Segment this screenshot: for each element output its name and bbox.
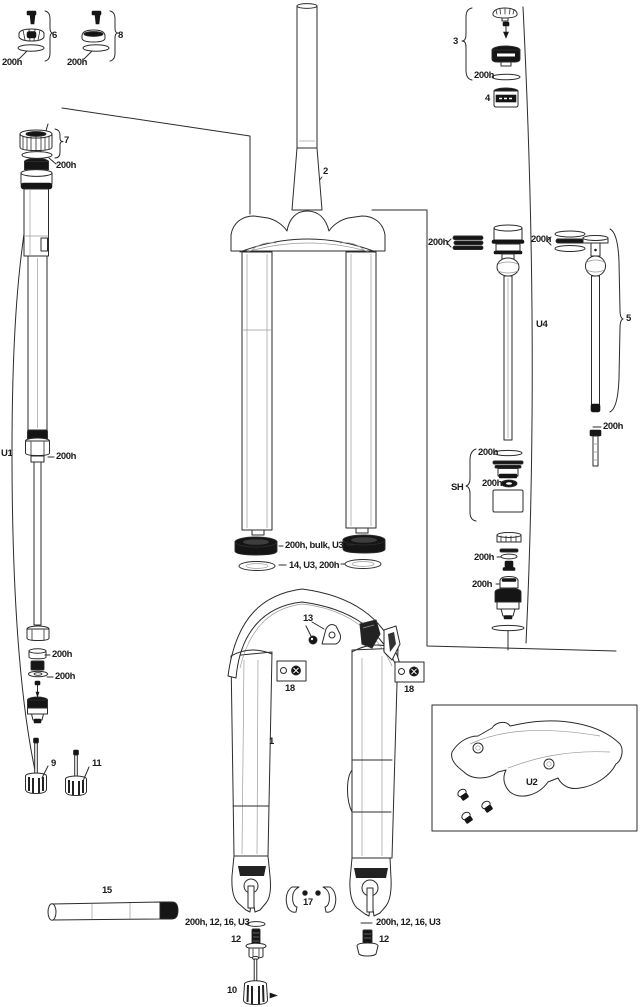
part-4-label: 4 <box>485 94 490 104</box>
fork-line-art <box>0 0 640 1007</box>
part-18-box-left <box>277 661 306 681</box>
exploded-parts-diagram: 6 200h 8 200h 3 200h 4 7 200h 2 U1 200h … <box>0 0 640 1007</box>
part5-foot-service-interval: 200h <box>603 422 623 432</box>
part-1-label: 1 <box>269 737 274 747</box>
part-4-canister <box>494 88 518 107</box>
part-11-label: 11 <box>92 759 101 769</box>
part-12-right-label: 12 <box>379 935 389 945</box>
dropout-left <box>232 856 271 912</box>
group6-service-interval: 200h <box>2 58 22 68</box>
damper-cartridge-u1 <box>21 159 54 641</box>
u4-rings-service-interval: 200h <box>428 238 448 248</box>
part-12-left-label: 12 <box>231 935 241 945</box>
assembly-u1-label: U1 <box>1 449 12 459</box>
part5-rings-service-interval: 200h <box>531 235 551 245</box>
axle-bolt-callout-left: 200h, 12, 16, U3 <box>185 918 249 928</box>
group3-service-interval: 200h <box>474 71 494 81</box>
part-18-right-label: 18 <box>404 685 414 695</box>
part-10-rebound-knob <box>244 956 278 1004</box>
group-8-top-cap-assembly <box>82 11 118 61</box>
part-3-label: 3 <box>453 37 458 47</box>
foam-ring-callout: 14, U3, 200h <box>289 561 339 571</box>
part-8-label: 8 <box>118 31 123 41</box>
group-6-top-cap-assembly <box>18 11 53 61</box>
part-2-label: 2 <box>323 167 328 177</box>
stanchion-left <box>242 252 272 535</box>
part-18-box-right <box>395 662 424 682</box>
lowers-casting <box>228 589 400 858</box>
dropout-right <box>350 858 391 916</box>
right-lower-stack <box>492 533 524 651</box>
dust-seal-callout: 200h, bulk, U3 <box>285 541 343 551</box>
assembly-u2-label: U2 <box>526 778 537 788</box>
brace-7 <box>55 129 63 158</box>
sh-service-interval-top: 200h <box>478 448 498 458</box>
part-11-adjuster-knob <box>66 750 90 796</box>
part-15-thru-axle <box>48 902 178 920</box>
group7-service-interval: 200h <box>56 161 76 171</box>
part-17-label: 17 <box>303 898 313 908</box>
part-13-label: 13 <box>303 614 313 624</box>
u1-foot-service-interval: 200h <box>56 452 76 462</box>
right-stack-service-interval-rings: 200h <box>474 553 494 563</box>
part-18-left-label: 18 <box>285 684 295 694</box>
axle-bolt-callout-right: 200h, 12, 16, U3 <box>376 918 440 928</box>
part-5-label: 5 <box>626 314 631 324</box>
brace-sh <box>466 449 476 521</box>
stanchion-right <box>346 252 376 533</box>
steerer-tube <box>292 4 322 210</box>
group8-service-interval: 200h <box>67 58 87 68</box>
sh-service-interval-mid: 200h <box>482 479 502 489</box>
left-stack-service-interval-top: 200h <box>52 650 72 660</box>
part-12-bolt-right <box>357 923 378 956</box>
brace-5 <box>610 229 623 412</box>
damper-small-parts-stack <box>28 649 54 723</box>
left-stack-service-interval-bottom: 200h <box>55 672 75 682</box>
part-7-label: 7 <box>64 136 69 146</box>
part-6-label: 6 <box>52 31 57 41</box>
part-9-rebound-tool <box>26 738 49 794</box>
assembly-u4-label: U4 <box>536 320 547 330</box>
crown <box>231 211 385 252</box>
brace-8 <box>110 11 118 61</box>
u4-glide-rings <box>447 236 483 250</box>
part-13-cable-guide <box>306 622 341 644</box>
part-15-label: 15 <box>102 886 112 896</box>
u2-fender-kit-box <box>432 705 637 831</box>
assembly-sh-label: SH <box>451 483 463 493</box>
part-9-label: 9 <box>51 759 56 769</box>
part-10-label: 10 <box>227 986 237 996</box>
brace-3 <box>462 8 472 80</box>
right-stack-service-interval-cap: 200h <box>472 580 492 590</box>
u4-air-shaft-assembly <box>492 225 524 440</box>
